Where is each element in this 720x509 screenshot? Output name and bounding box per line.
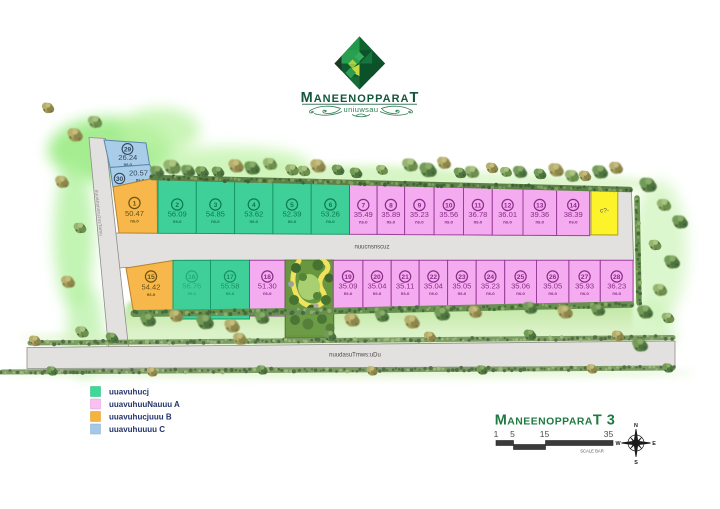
svg-text:35.56: 35.56 (439, 210, 458, 219)
svg-text:14: 14 (570, 202, 578, 209)
svg-text:25: 25 (517, 274, 525, 281)
svg-text:ns.o: ns.o (288, 219, 297, 224)
svg-text:13: 13 (536, 202, 544, 209)
svg-text:SCALE BAR: SCALE BAR (580, 449, 604, 454)
svg-text:nuudasuTmws:uDu: nuudasuTmws:uDu (329, 353, 381, 359)
svg-text:23: 23 (458, 274, 466, 281)
svg-text:26.24: 26.24 (118, 153, 137, 162)
svg-text:ns.o: ns.o (373, 291, 382, 296)
svg-text:ns.o: ns.o (359, 220, 368, 225)
svg-text:54.42: 54.42 (141, 282, 160, 291)
svg-text:39.36: 39.36 (530, 210, 549, 219)
svg-text:6: 6 (329, 202, 333, 209)
svg-text:ns.o: ns.o (147, 292, 156, 297)
svg-text:26: 26 (549, 274, 557, 281)
svg-text:ns.o: ns.o (263, 291, 272, 296)
svg-text:35.49: 35.49 (354, 210, 373, 219)
svg-text:53.26: 53.26 (321, 209, 340, 218)
svg-text:50.47: 50.47 (125, 209, 144, 218)
svg-text:35.04: 35.04 (424, 281, 443, 290)
svg-text:ns.o: ns.o (474, 220, 483, 225)
svg-text:19: 19 (344, 274, 352, 281)
svg-text:20.57: 20.57 (129, 169, 148, 178)
svg-text:35: 35 (604, 429, 614, 439)
svg-text:35.23: 35.23 (410, 210, 429, 219)
svg-text:ns.o: ns.o (226, 291, 235, 296)
svg-text:35.04: 35.04 (367, 281, 386, 290)
svg-text:36.01: 36.01 (498, 210, 517, 219)
svg-text:51.30: 51.30 (258, 281, 277, 290)
svg-text:35.11: 35.11 (396, 281, 414, 290)
svg-text:22: 22 (430, 274, 438, 281)
svg-text:ns.o: ns.o (173, 219, 182, 224)
svg-text:ns.o: ns.o (569, 220, 578, 225)
svg-text:2: 2 (175, 202, 179, 209)
svg-text:ns.o: ns.o (612, 291, 621, 296)
svg-text:ns.o: ns.o (344, 291, 353, 296)
svg-text:8: 8 (389, 202, 393, 209)
svg-text:7: 7 (361, 202, 365, 209)
svg-text:ns.o: ns.o (401, 291, 410, 296)
svg-text:1: 1 (133, 200, 137, 207)
svg-text:ns.o: ns.o (444, 220, 453, 225)
svg-text:36.78: 36.78 (468, 210, 487, 219)
svg-text:ns.o: ns.o (415, 220, 424, 225)
svg-text:35.23: 35.23 (481, 281, 500, 290)
svg-text:18: 18 (264, 274, 272, 281)
svg-text:uniuwsau: uniuwsau (344, 105, 379, 114)
svg-text:15: 15 (540, 429, 550, 439)
svg-text:5: 5 (510, 429, 515, 439)
svg-text:ns.o: ns.o (458, 291, 467, 296)
svg-text:uuavuhuuNauuu A: uuavuhuuNauuu A (109, 400, 180, 409)
svg-text:56.09: 56.09 (168, 209, 187, 218)
svg-text:uuavuhuuuu C: uuavuhuuuu C (109, 425, 165, 434)
svg-text:ns.o: ns.o (130, 219, 139, 224)
svg-text:ns.o: ns.o (535, 220, 544, 225)
svg-text:55.58: 55.58 (220, 281, 239, 290)
svg-text:uuavuhucj: uuavuhucj (109, 388, 149, 397)
svg-text:ns.o: ns.o (211, 219, 220, 224)
svg-text:35.93: 35.93 (575, 281, 594, 290)
svg-text:24: 24 (487, 274, 495, 281)
svg-text:16: 16 (188, 274, 196, 281)
svg-text:ns.o: ns.o (486, 291, 495, 296)
svg-text:N: N (634, 423, 638, 429)
svg-text:35.05: 35.05 (543, 281, 562, 290)
svg-text:56.76: 56.76 (182, 281, 201, 290)
svg-text:3: 3 (214, 202, 218, 209)
svg-text:53.62: 53.62 (244, 209, 263, 218)
svg-text:MANEENOPPARAT: MANEENOPPARAT (301, 90, 420, 106)
svg-text:38.39: 38.39 (564, 210, 583, 219)
svg-text:54.85: 54.85 (206, 209, 225, 218)
svg-text:35.05: 35.05 (452, 281, 471, 290)
svg-text:17: 17 (226, 274, 234, 281)
svg-text:nuucnsnscuz: nuucnsnscuz (354, 245, 389, 251)
svg-text:30: 30 (116, 176, 124, 183)
svg-text:35.89: 35.89 (381, 210, 400, 219)
svg-text:4: 4 (252, 202, 256, 209)
svg-text:27: 27 (581, 274, 589, 281)
svg-text:20: 20 (373, 274, 381, 281)
svg-text:11: 11 (474, 202, 481, 209)
svg-text:uuavuhucjuuu B: uuavuhucjuuu B (109, 413, 172, 422)
svg-text:S: S (634, 460, 638, 466)
svg-text:ns.o: ns.o (516, 291, 525, 296)
svg-text:9: 9 (418, 202, 422, 209)
svg-text:5: 5 (290, 202, 294, 209)
svg-text:ns.o: ns.o (429, 291, 438, 296)
svg-text:ns.o: ns.o (249, 219, 258, 224)
svg-text:ns.o: ns.o (548, 291, 557, 296)
svg-text:15: 15 (147, 274, 155, 281)
svg-text:ns.o: ns.o (387, 220, 396, 225)
svg-text:12: 12 (504, 202, 512, 209)
svg-text:1: 1 (494, 429, 499, 439)
svg-text:E: E (652, 441, 656, 447)
svg-text:36.23: 36.23 (607, 281, 626, 290)
svg-text:ns.o: ns.o (503, 220, 512, 225)
svg-text:ns.o: ns.o (326, 219, 335, 224)
svg-text:35.06: 35.06 (511, 281, 530, 290)
svg-text:c?-: c?- (600, 208, 609, 215)
svg-text:10: 10 (445, 202, 453, 209)
svg-text:52.39: 52.39 (282, 209, 301, 218)
svg-text:35.09: 35.09 (338, 281, 357, 290)
svg-text:ns.o: ns.o (187, 291, 196, 296)
svg-text:ns.o: ns.o (580, 291, 589, 296)
svg-text:28: 28 (613, 274, 621, 281)
svg-text:21: 21 (401, 274, 409, 281)
